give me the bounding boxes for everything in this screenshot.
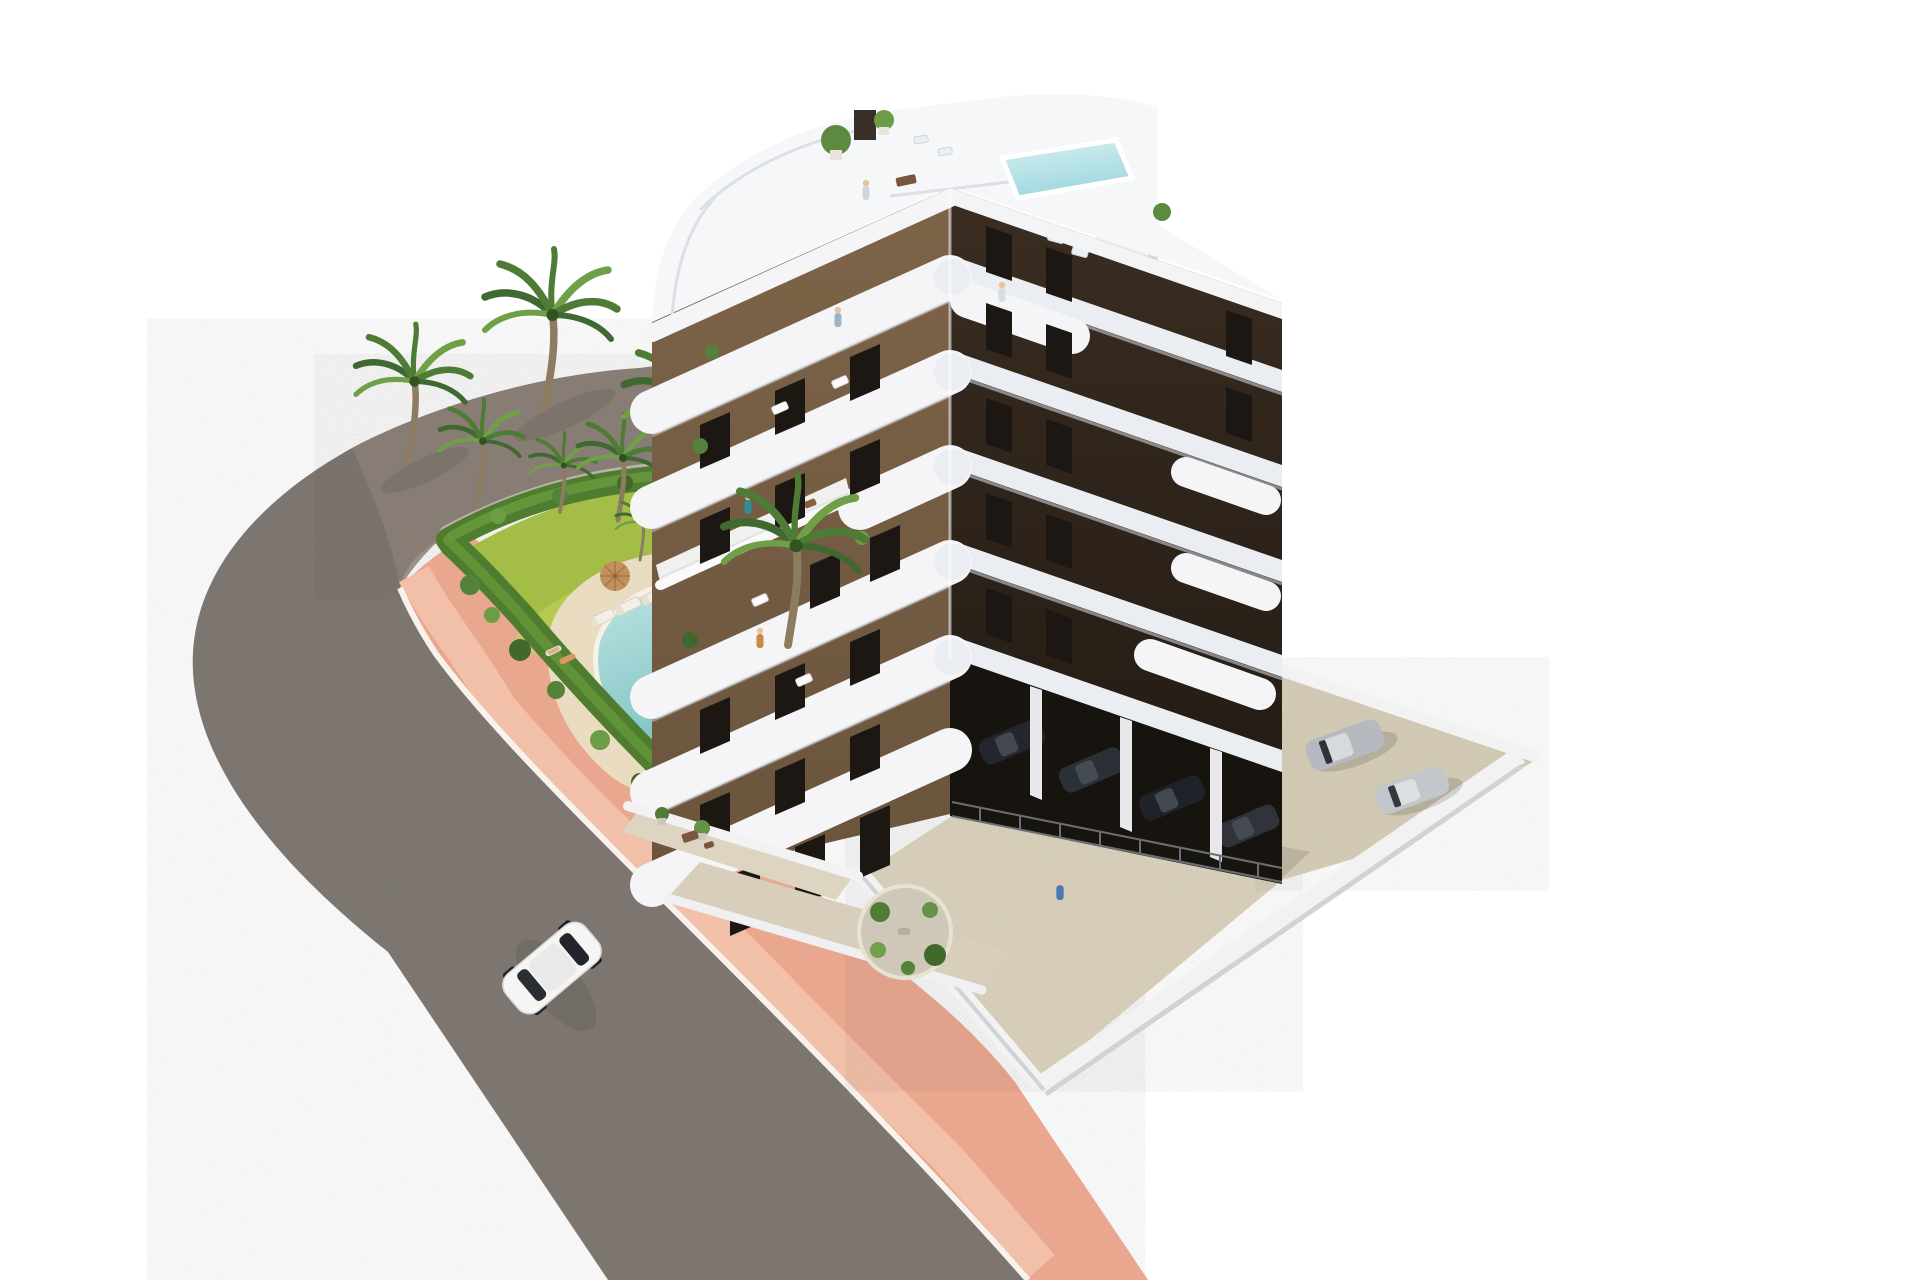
scene-svg bbox=[0, 0, 1920, 1280]
person-corner-balcony bbox=[999, 282, 1006, 302]
person-rooftop bbox=[863, 180, 870, 200]
person-ground bbox=[1056, 879, 1063, 900]
roof-chimney bbox=[854, 110, 876, 140]
person-balcony-lower bbox=[757, 628, 764, 648]
apartment-building bbox=[652, 95, 1282, 937]
patio-table bbox=[898, 928, 910, 935]
person-balcony-upper bbox=[835, 307, 842, 327]
render-canvas bbox=[0, 0, 1920, 1280]
